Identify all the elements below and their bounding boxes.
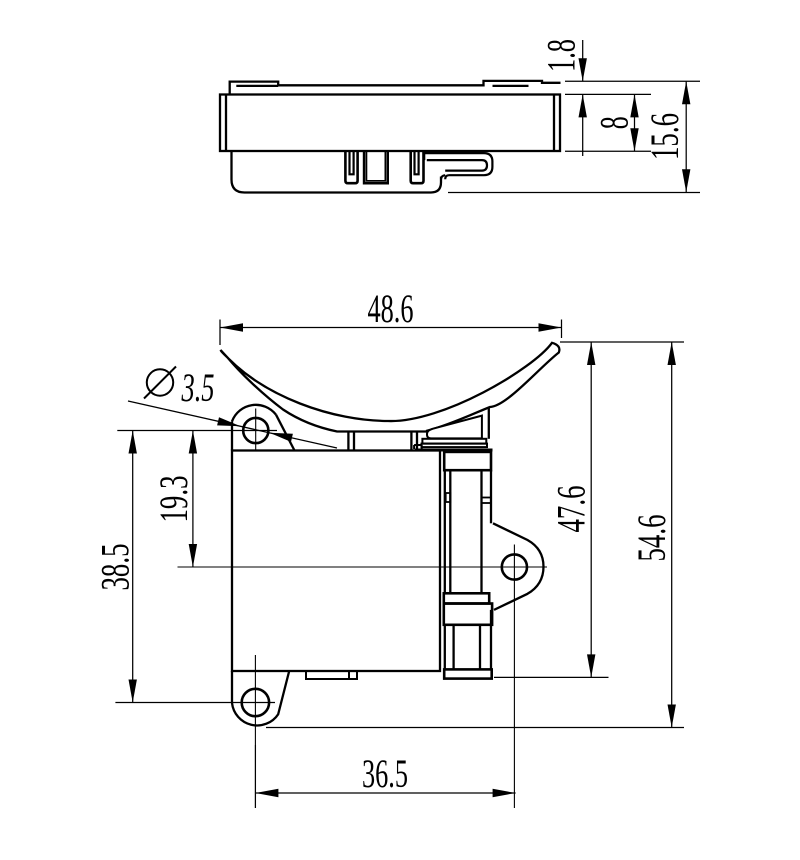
svg-text:38.5: 38.5 [93,544,138,591]
svg-text:1.8: 1.8 [539,39,584,72]
svg-text:8: 8 [592,116,637,129]
svg-text:48.6: 48.6 [368,286,414,331]
svg-text:47.6: 47.6 [549,486,594,533]
svg-text:19.3: 19.3 [151,476,196,523]
svg-text:15.6: 15.6 [642,113,687,160]
svg-text:3.5: 3.5 [181,365,215,410]
svg-text:54.6: 54.6 [629,515,674,562]
svg-text:36.5: 36.5 [362,751,408,796]
